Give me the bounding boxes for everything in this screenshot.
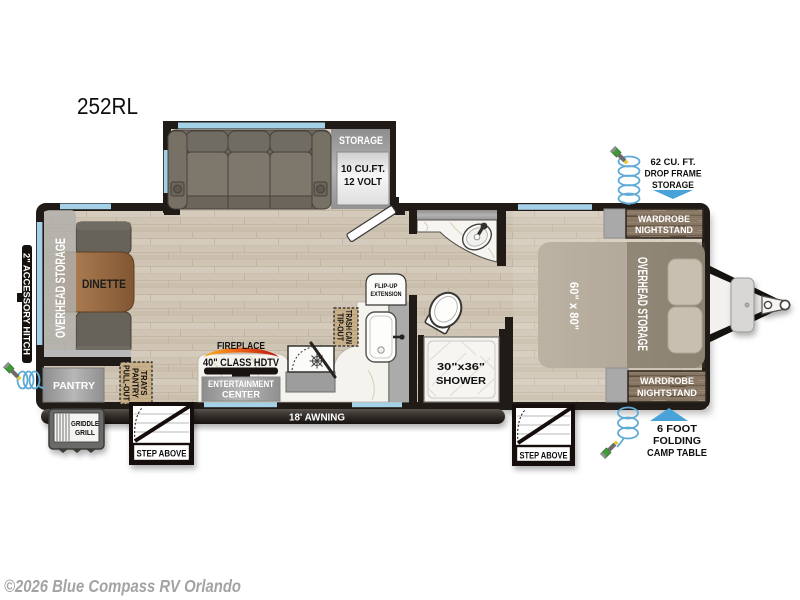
svg-text:60" x 80": 60" x 80"	[567, 282, 579, 330]
svg-text:GRIDDLE: GRIDDLE	[71, 421, 99, 428]
svg-text:OVERHEAD STORAGE: OVERHEAD STORAGE	[635, 257, 651, 351]
svg-text:2" ACCESSORY HITCH: 2" ACCESSORY HITCH	[22, 253, 32, 355]
svg-text:252RL: 252RL	[77, 93, 138, 119]
svg-text:12 VOLT: 12 VOLT	[344, 177, 382, 188]
svg-text:ENTERTAINMENT: ENTERTAINMENT	[208, 379, 274, 390]
svg-text:62 CU. FT.: 62 CU. FT.	[651, 157, 696, 168]
svg-text:40" CLASS HDTV: 40" CLASS HDTV	[203, 357, 280, 369]
svg-text:STORAGE: STORAGE	[339, 135, 383, 147]
svg-text:NIGHTSTAND: NIGHTSTAND	[637, 388, 697, 398]
svg-text:TRAYS: TRAYS	[139, 371, 148, 397]
svg-text:10 CU.FT.: 10 CU.FT.	[341, 164, 385, 175]
svg-text:STEP ABOVE: STEP ABOVE	[137, 449, 187, 460]
svg-text:CENTER: CENTER	[222, 390, 260, 401]
svg-text:EXTENSION: EXTENSION	[371, 292, 402, 298]
svg-text:WARDROBE: WARDROBE	[640, 376, 694, 386]
svg-text:18' AWNING: 18' AWNING	[289, 412, 345, 424]
svg-text:PANTRY: PANTRY	[131, 368, 140, 399]
svg-text:FOLDING: FOLDING	[653, 436, 701, 447]
svg-text:STEP ABOVE: STEP ABOVE	[520, 451, 568, 462]
svg-text:DINETTE: DINETTE	[82, 279, 126, 291]
svg-text:NIGHTSTAND: NIGHTSTAND	[635, 225, 693, 235]
svg-text:STORAGE: STORAGE	[652, 180, 694, 191]
svg-text:DROP FRAME: DROP FRAME	[645, 169, 702, 180]
svg-text:TRASH CAN: TRASH CAN	[344, 310, 353, 344]
svg-text:FIREPLACE: FIREPLACE	[217, 341, 265, 352]
svg-text:WARDROBE: WARDROBE	[638, 214, 690, 224]
svg-text:SHOWER: SHOWER	[436, 376, 487, 387]
svg-text:CAMP TABLE: CAMP TABLE	[647, 448, 707, 459]
svg-text:GRILL: GRILL	[75, 430, 96, 437]
svg-text:©2026 Blue Compass RV Orlando: ©2026 Blue Compass RV Orlando	[4, 576, 241, 596]
svg-text:PANTRY: PANTRY	[53, 380, 95, 392]
svg-text:PULL-OUT: PULL-OUT	[122, 365, 131, 401]
svg-text:FLIP-UP: FLIP-UP	[375, 284, 398, 290]
svg-text:TIP-OUT: TIP-OUT	[336, 313, 345, 341]
svg-text:6 FOOT: 6 FOOT	[657, 424, 697, 435]
svg-text:OVERHEAD STORAGE: OVERHEAD STORAGE	[52, 238, 68, 338]
svg-text:30"x36": 30"x36"	[437, 362, 485, 373]
